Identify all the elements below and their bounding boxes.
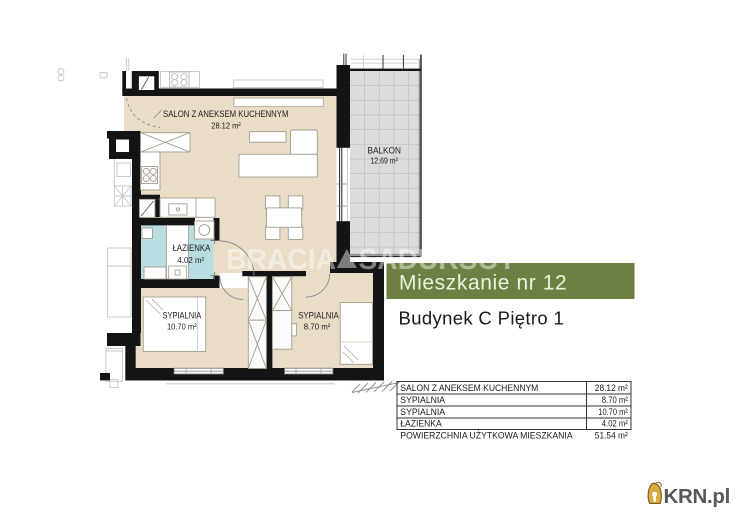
svg-text:4.02 m²: 4.02 m² <box>602 419 628 429</box>
svg-text:28.12 m²: 28.12 m² <box>595 383 628 393</box>
svg-text:BRACIA: BRACIA <box>226 244 336 276</box>
svg-text:8.70 m²: 8.70 m² <box>602 395 628 405</box>
svg-text:51.54 m²: 51.54 m² <box>595 430 628 440</box>
svg-text:12.69 m²: 12.69 m² <box>370 156 398 166</box>
svg-text:SYPIALNIA: SYPIALNIA <box>400 395 446 405</box>
svg-text:4.02 m²: 4.02 m² <box>177 255 204 265</box>
svg-text:SYPIALNIA: SYPIALNIA <box>298 311 339 321</box>
svg-text:Mieszkanie nr 12: Mieszkanie nr 12 <box>399 272 567 295</box>
svg-text:SYPIALNIA: SYPIALNIA <box>163 311 202 321</box>
svg-text:10.70 m²: 10.70 m² <box>167 321 197 331</box>
svg-text:ŁAZIENKA: ŁAZIENKA <box>400 419 442 429</box>
svg-text:POWIERZCHNIA UŻYTKOWA MIESZKAN: POWIERZCHNIA UŻYTKOWA MIESZKANIA <box>400 430 573 440</box>
svg-text:BALKON: BALKON <box>368 146 401 156</box>
svg-text:28.12 m²: 28.12 m² <box>211 121 241 131</box>
svg-text:Budynek C Piętro 1: Budynek C Piętro 1 <box>399 308 565 329</box>
svg-text:SYPIALNIA: SYPIALNIA <box>400 407 446 417</box>
svg-text:SALON Z ANEKSEM KUCHENNYM: SALON Z ANEKSEM KUCHENNYM <box>400 383 538 393</box>
svg-text:KRN.pl: KRN.pl <box>664 485 731 508</box>
svg-text:8.70 m²: 8.70 m² <box>304 321 331 331</box>
svg-text:10.70 m²: 10.70 m² <box>598 407 628 417</box>
svg-text:ŁAZIENKA: ŁAZIENKA <box>173 243 211 253</box>
svg-text:SALON Z ANEKSEM KUCHENNYM: SALON Z ANEKSEM KUCHENNYM <box>163 109 289 119</box>
